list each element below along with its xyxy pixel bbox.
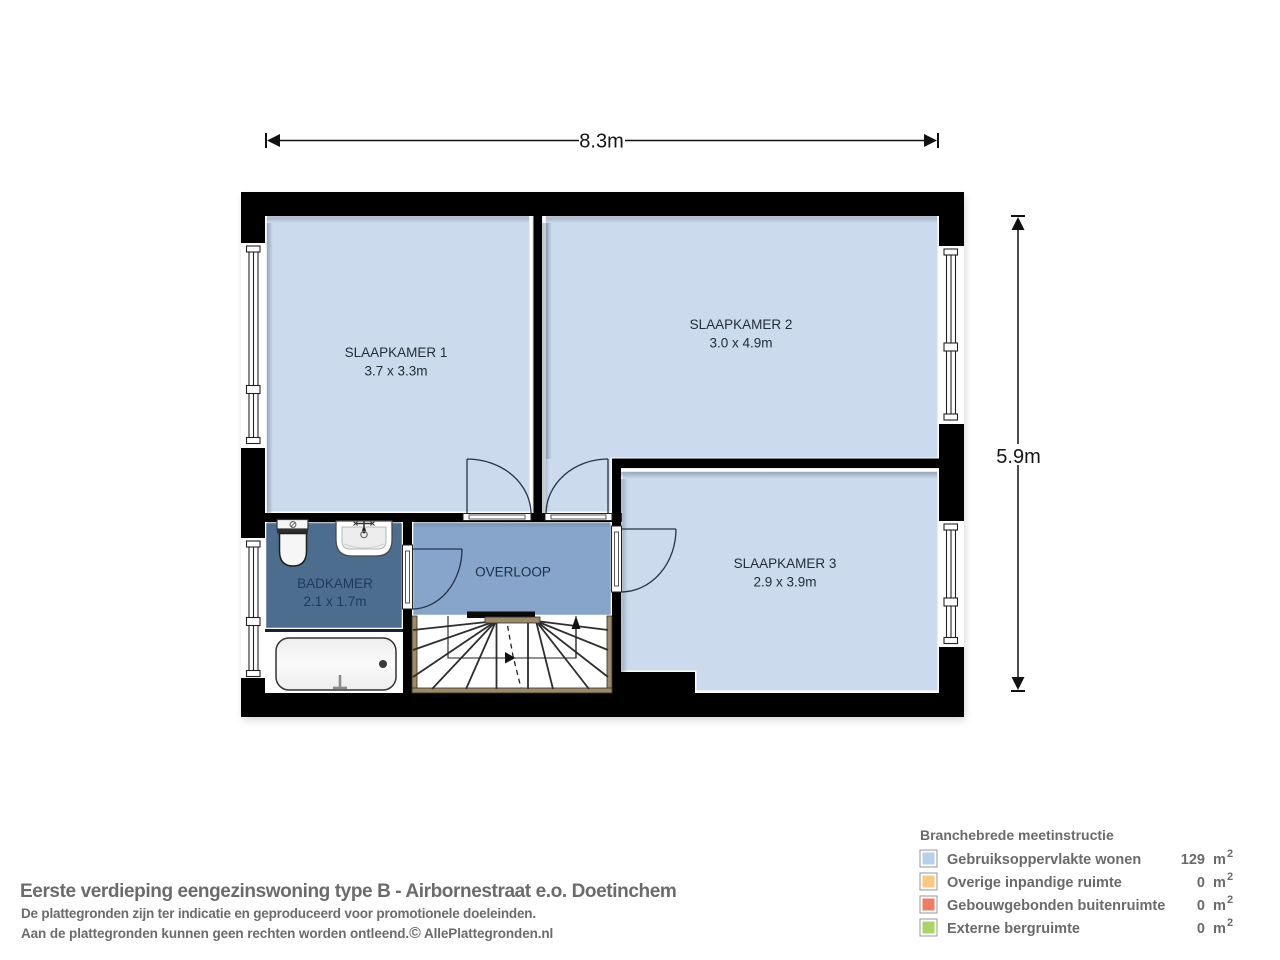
svg-text:2.9 x 3.9m: 2.9 x 3.9m [753,575,816,590]
svg-text:0: 0 [1197,875,1205,891]
svg-text:Gebruiksoppervlakte wonen: Gebruiksoppervlakte wonen [947,852,1141,868]
svg-text:3.0 x 4.9m: 3.0 x 4.9m [709,336,772,351]
svg-text:Overige inpandige ruimte: Overige inpandige ruimte [947,875,1122,891]
svg-text:m: m [1213,898,1226,914]
svg-text:SLAAPKAMER 3: SLAAPKAMER 3 [734,556,837,571]
svg-text:2: 2 [1227,871,1233,883]
svg-text:OVERLOOP: OVERLOOP [475,565,551,580]
svg-text:2.1 x 1.7m: 2.1 x 1.7m [303,594,366,609]
svg-text:Gebouwgebonden buitenruimte: Gebouwgebonden buitenruimte [947,898,1165,914]
svg-text:5.9m: 5.9m [996,446,1040,468]
svg-text:m: m [1213,875,1226,891]
svg-text:m: m [1213,921,1226,937]
svg-text:0: 0 [1197,921,1205,937]
svg-text:Eerste verdieping eengezinswon: Eerste verdieping eengezinswoning type B… [20,881,676,902]
svg-text:0: 0 [1197,898,1205,914]
svg-text:De plattegronden zijn ter indi: De plattegronden zijn ter indicatie en g… [21,906,536,921]
svg-text:3.7 x 3.3m: 3.7 x 3.3m [364,364,427,379]
svg-text:Aan de plattegronden kunnen ge: Aan de plattegronden kunnen geen rechten… [21,925,553,942]
svg-text:BADKAMER: BADKAMER [297,576,373,591]
svg-text:m: m [1213,852,1226,868]
svg-text:8.3m: 8.3m [579,131,623,153]
svg-text:SLAAPKAMER 2: SLAAPKAMER 2 [690,317,793,332]
svg-text:2: 2 [1227,848,1233,860]
svg-text:2: 2 [1227,894,1233,906]
svg-text:Branchebrede meetinstructie: Branchebrede meetinstructie [920,827,1114,843]
svg-text:129: 129 [1181,852,1205,868]
svg-text:2: 2 [1227,917,1233,929]
svg-text:Externe bergruimte: Externe bergruimte [947,921,1080,937]
svg-text:SLAAPKAMER 1: SLAAPKAMER 1 [345,345,448,360]
